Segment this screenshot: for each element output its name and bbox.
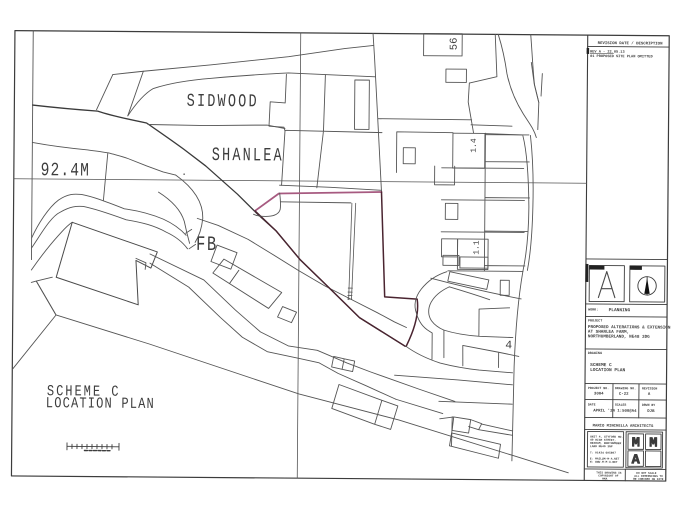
svg-text:DRAWING: DRAWING [588, 352, 602, 356]
svg-text:DATE: DATE [588, 402, 596, 406]
svg-text:NORTHUMBERLAND, NE48 3DG: NORTHUMBERLAND, NE48 3DG [588, 334, 650, 339]
svg-text:WORK:: WORK: [588, 308, 598, 312]
svg-text:W: WWW.M-M-A.NET: W: WWW.M-M-A.NET [590, 461, 618, 464]
svg-text:92.4M: 92.4M [41, 161, 91, 183]
svg-text:A: A [632, 453, 641, 468]
svg-text:MARIO MINCHELLA ARCHITECTS: MARIO MINCHELLA ARCHITECTS [593, 424, 654, 428]
svg-text:M: M [649, 436, 657, 451]
svg-text:MMA: MMA [602, 478, 607, 481]
svg-text:56: 56 [449, 38, 461, 51]
svg-text:REVISION: REVISION [642, 386, 657, 390]
svg-text:C-22: C-22 [619, 393, 629, 397]
svg-text:SCALES: SCALES [615, 403, 627, 407]
svg-text:LAND NE46 3NP: LAND NE46 3NP [590, 445, 613, 448]
svg-text:DRAWING NO.: DRAWING NO. [615, 386, 636, 390]
svg-text:DRWN BY: DRWN BY [642, 403, 656, 407]
svg-text:PLANNING: PLANNING [609, 307, 631, 313]
svg-text:REVISION DATE / DESCRIPTION: REVISION DATE / DESCRIPTION [598, 41, 663, 47]
svg-text:A: A [648, 393, 651, 397]
svg-text:BE CHECKED ON SITE: BE CHECKED ON SITE [633, 478, 664, 481]
svg-text:PROJECT: PROJECT [588, 319, 602, 323]
svg-text:M: M [632, 436, 640, 451]
svg-text:SHANLEA: SHANLEA [212, 144, 284, 166]
svg-text:APRIL '24: APRIL '24 [593, 408, 615, 413]
svg-text:1:500@A4: 1:500@A4 [617, 409, 637, 414]
svg-text:T: 01434 605807: T: 01434 605807 [590, 451, 616, 454]
svg-text:LOCATION PLAN: LOCATION PLAN [590, 367, 625, 373]
svg-text:01 PROPOSED SITE PLAN OMITTED: 01 PROPOSED SITE PLAN OMITTED [590, 55, 653, 59]
svg-text:FB: FB [196, 234, 218, 257]
svg-text:DJB: DJB [647, 410, 655, 414]
svg-text:3004: 3004 [594, 392, 604, 396]
svg-text:1.1: 1.1 [473, 240, 482, 255]
svg-text:4: 4 [505, 339, 512, 352]
svg-text:LOCATION PLAN: LOCATION PLAN [46, 396, 155, 414]
svg-text:SIDWOOD: SIDWOOD [187, 91, 259, 112]
svg-text:PROJECT NO.: PROJECT NO. [588, 386, 609, 390]
svg-text:1.4: 1.4 [470, 138, 479, 153]
